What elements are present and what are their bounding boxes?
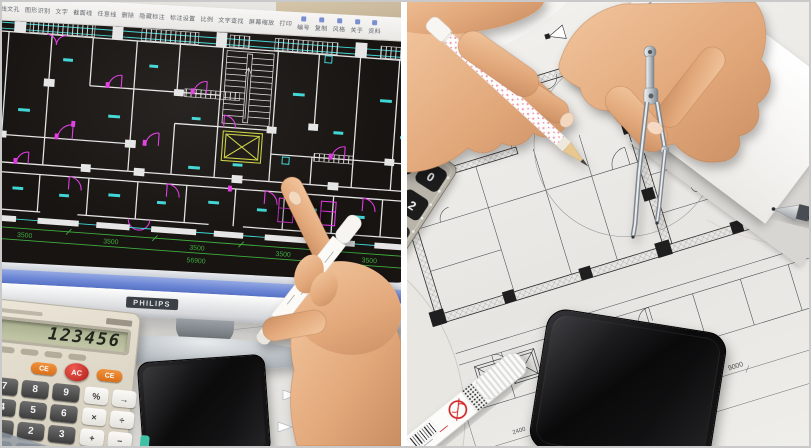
photo-collage: 整线文孔图形识别文字截面线任意线删除隐藏标注标注设置比例文字查找屏幕缩放打印编号… [0,0,811,448]
photo-left-cad-monitor: 整线文孔图形识别文字截面线任意线删除隐藏标注标注设置比例文字查找屏幕缩放打印编号… [2,2,401,446]
pointing-hand-layer [2,2,401,446]
photo-right-blueprints: 9000 30700 2400 FM [407,2,809,446]
pencil-hand [407,2,594,172]
compass-hand [559,2,771,239]
hands-layer [407,2,809,446]
